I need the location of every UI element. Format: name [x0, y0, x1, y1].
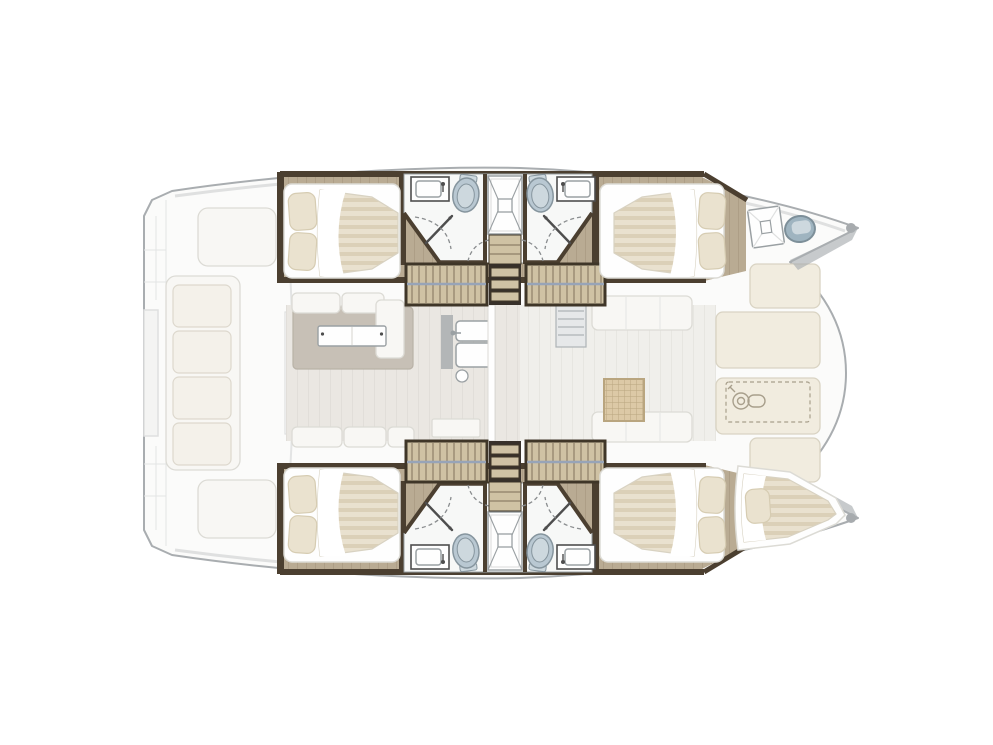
stern-platform [144, 310, 158, 436]
forepeak-berth [735, 466, 845, 550]
appliance-module [556, 303, 586, 347]
sofa-cushion [344, 427, 386, 447]
cockpit-bench [166, 276, 240, 470]
sofa-cushion [292, 427, 342, 447]
sunpad-panel [750, 264, 820, 308]
galley-sink [456, 343, 492, 367]
galley-fixture [456, 370, 468, 382]
deck-hatch [748, 206, 785, 248]
bench-cushion [173, 423, 231, 465]
cockpit-sunpad-port [198, 208, 276, 266]
sunpad-panel [716, 378, 820, 434]
low-cabinet [432, 419, 480, 437]
structural-pillar [488, 305, 495, 441]
sofa-cushion [292, 293, 340, 313]
starboard-bow [735, 466, 858, 550]
rattan-table [604, 379, 644, 421]
cockpit-sunpad-starboard [198, 480, 276, 538]
bench-cushion [173, 285, 231, 327]
catamaran-floor-plan [0, 0, 993, 745]
sunpad-panel [716, 312, 820, 368]
bench-cushion [173, 331, 231, 373]
boat-plan-svg [0, 0, 993, 745]
galley-sink [456, 321, 492, 341]
galley-counter [441, 315, 453, 369]
fwd-bench-seat [592, 296, 692, 330]
bench-cushion [173, 377, 231, 419]
saloon-table [318, 326, 386, 346]
forepeak-pillow [745, 488, 771, 524]
